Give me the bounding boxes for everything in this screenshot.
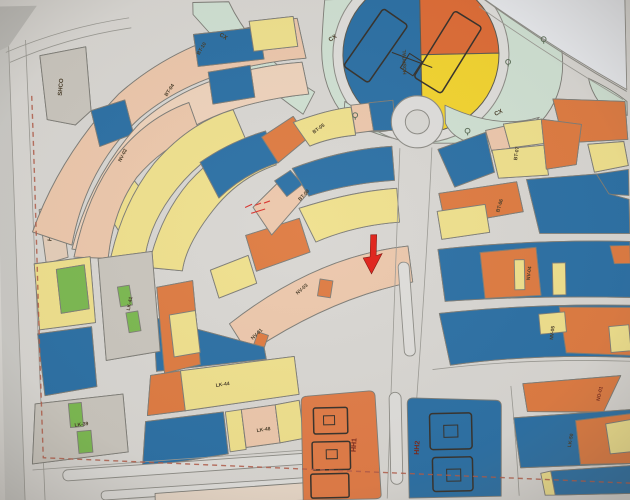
- masterplan-map-photo: HOSPITAL SHCO HTKT BT-10 BT-04: [0, 0, 630, 500]
- photo-vignette: [0, 0, 630, 500]
- masterplan-map: HOSPITAL SHCO HTKT BT-10 BT-04: [0, 0, 630, 500]
